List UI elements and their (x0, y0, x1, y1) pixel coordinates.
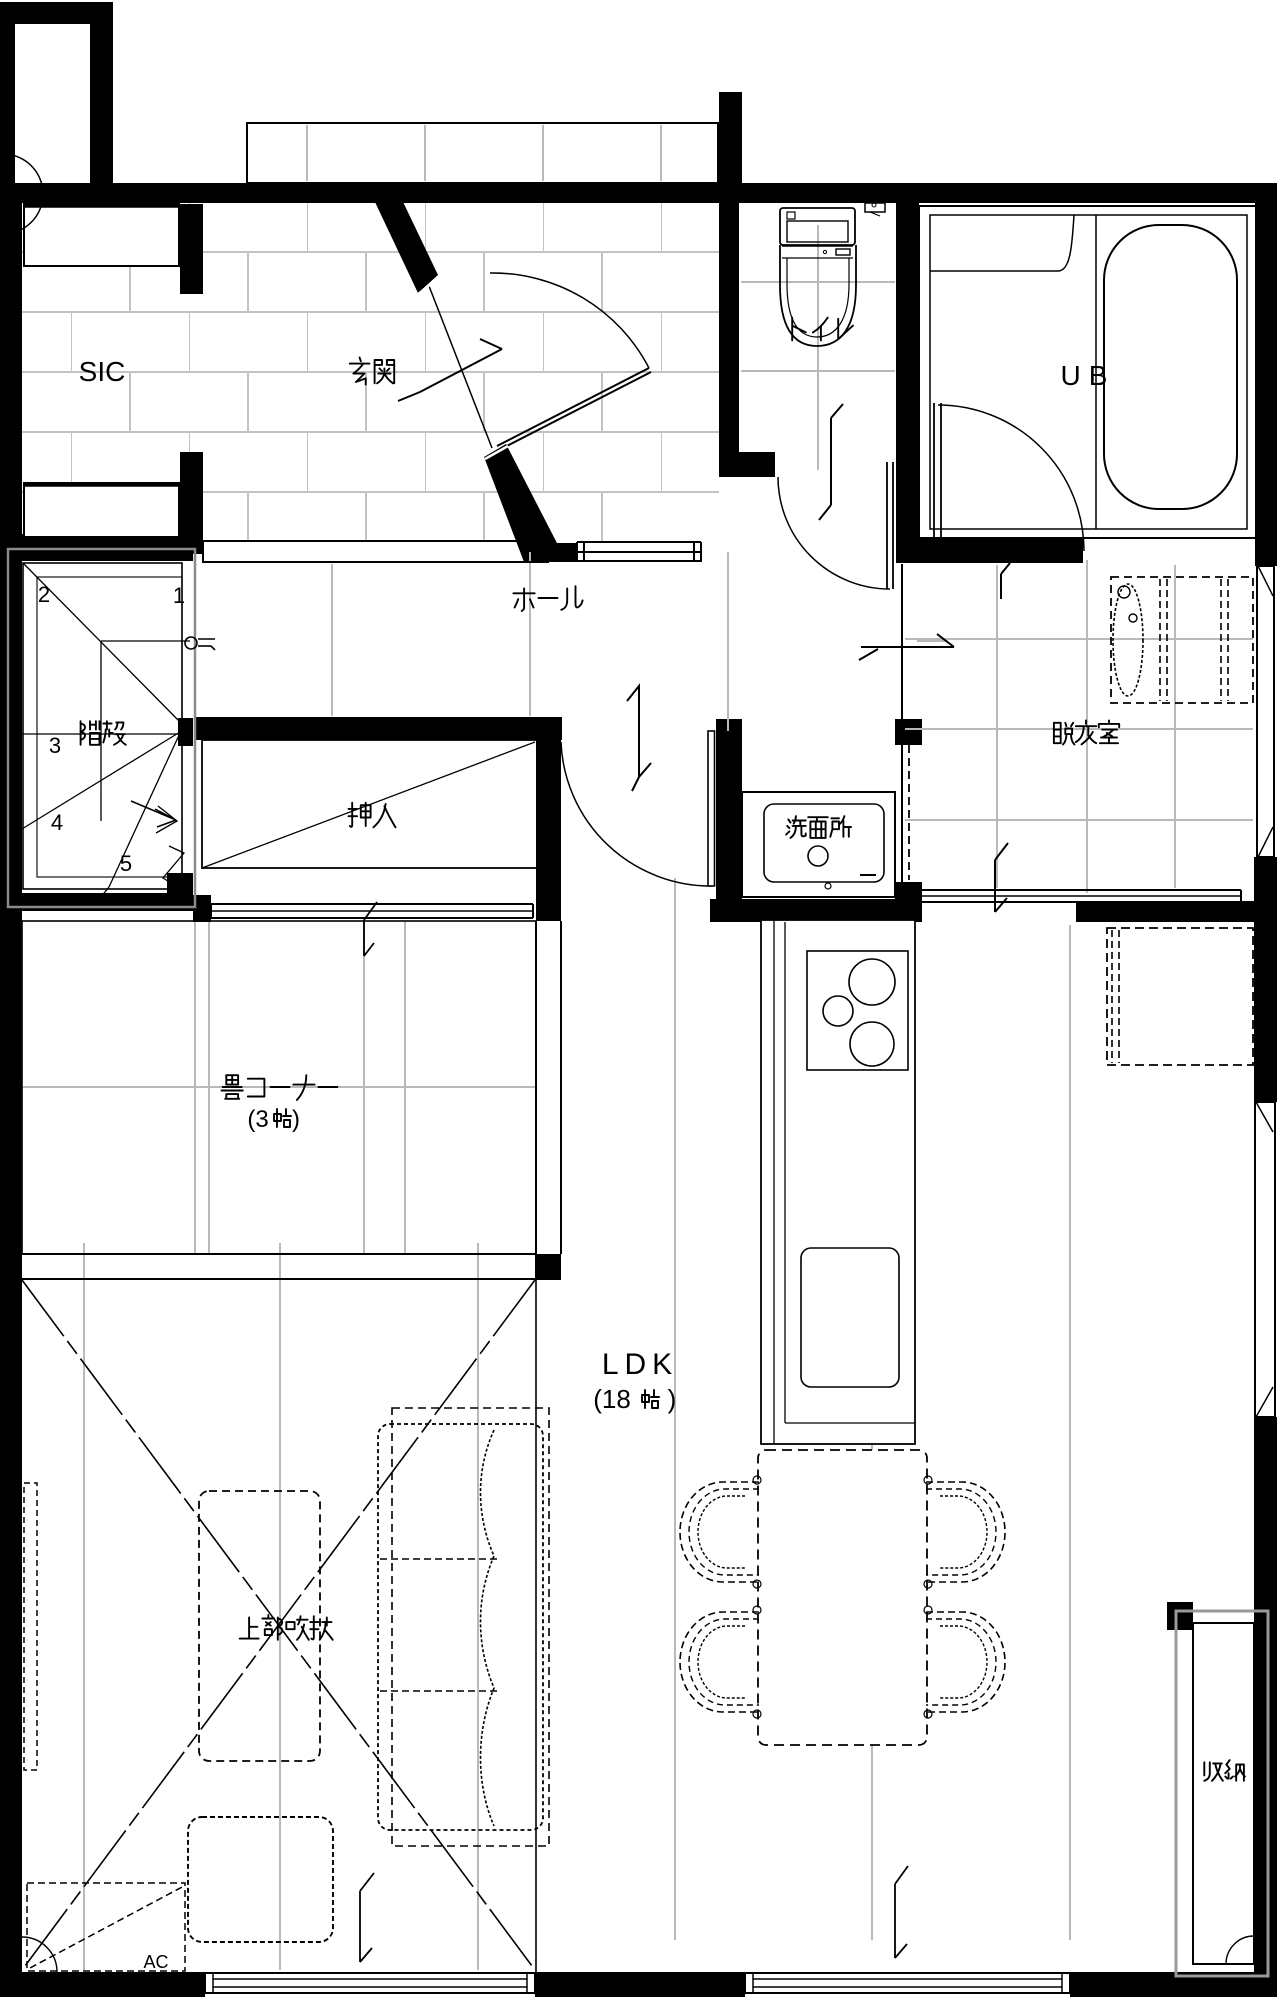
svg-text:4: 4 (51, 810, 63, 835)
svg-text:3: 3 (49, 733, 61, 758)
svg-text:SIC: SIC (79, 356, 126, 387)
svg-text:5: 5 (120, 851, 132, 876)
svg-text:1: 1 (173, 583, 185, 608)
svg-text:): ) (668, 1384, 677, 1414)
svg-text:): ) (292, 1106, 300, 1133)
svg-text:UB: UB (1061, 360, 1116, 391)
svg-text:LDK: LDK (602, 1348, 678, 1381)
svg-text:(3: (3 (247, 1106, 268, 1133)
svg-text:2: 2 (38, 582, 50, 607)
svg-text:(18: (18 (593, 1384, 631, 1414)
svg-text:AC: AC (143, 1952, 168, 1972)
